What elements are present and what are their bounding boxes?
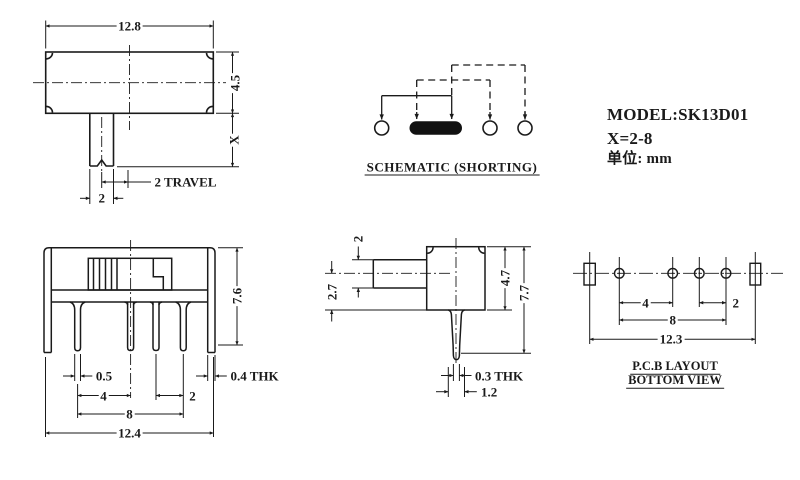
schematic-label: SCHEMATIC (SHORTING) (365, 161, 540, 176)
model-number: MODEL:SK13D01 (607, 106, 748, 123)
front-view-pitch2-dim: 2 (187, 389, 198, 402)
side-view-overall-height-dim: 7.7 (518, 282, 531, 302)
front-view-span8-dim: 8 (124, 408, 135, 421)
side-view-pin-width-dim: 1.2 (480, 385, 498, 398)
front-view-pin-width-dim: 0.5 (94, 370, 114, 383)
side-view-stem-height-dim: 2 (352, 234, 365, 245)
side-view-body-height-dim: 4.7 (499, 267, 512, 287)
pcb-pitch4-dim: 4 (640, 296, 651, 309)
top-view-stem-width-dim: 2 (96, 192, 107, 205)
pcb-layout-view (573, 252, 783, 344)
side-view-stem-offset-dim: 2.7 (325, 281, 338, 301)
top-view-stem-length-dim: X (228, 133, 241, 146)
top-view-width-dim: 12.8 (116, 20, 143, 33)
schematic-diagram (375, 65, 532, 135)
top-view-height-dim: 4.5 (229, 72, 242, 92)
drawing-linework (0, 0, 800, 480)
pcb-span8-dim: 8 (667, 314, 678, 327)
schematic-slider-contact (410, 121, 463, 135)
pcb-hole-span-dim: 12.3 (658, 333, 685, 346)
pcb-pitch2-dim: 2 (732, 296, 741, 309)
front-view-height-dim: 7.6 (231, 286, 244, 306)
bottom-view-label: BOTTOM VIEW (626, 374, 724, 389)
front-view-pitch4-dim: 4 (98, 389, 109, 402)
side-view-pin-thickness-dim: 0.3 THK (474, 369, 524, 382)
front-view-width-dim: 12.4 (116, 427, 143, 440)
front-view-thickness-dim: 0.4 THK (230, 370, 280, 383)
unit-note: 单位: mm (607, 152, 672, 167)
front-view (44, 240, 243, 437)
x-range: X=2-8 (607, 130, 653, 147)
engineering-drawing-sheet: 12.8 4.5 X 2 TRAVEL 2 SCHEMATIC (SHORTIN… (0, 0, 800, 480)
top-view-travel-dim: 2 TRAVEL (154, 176, 218, 189)
